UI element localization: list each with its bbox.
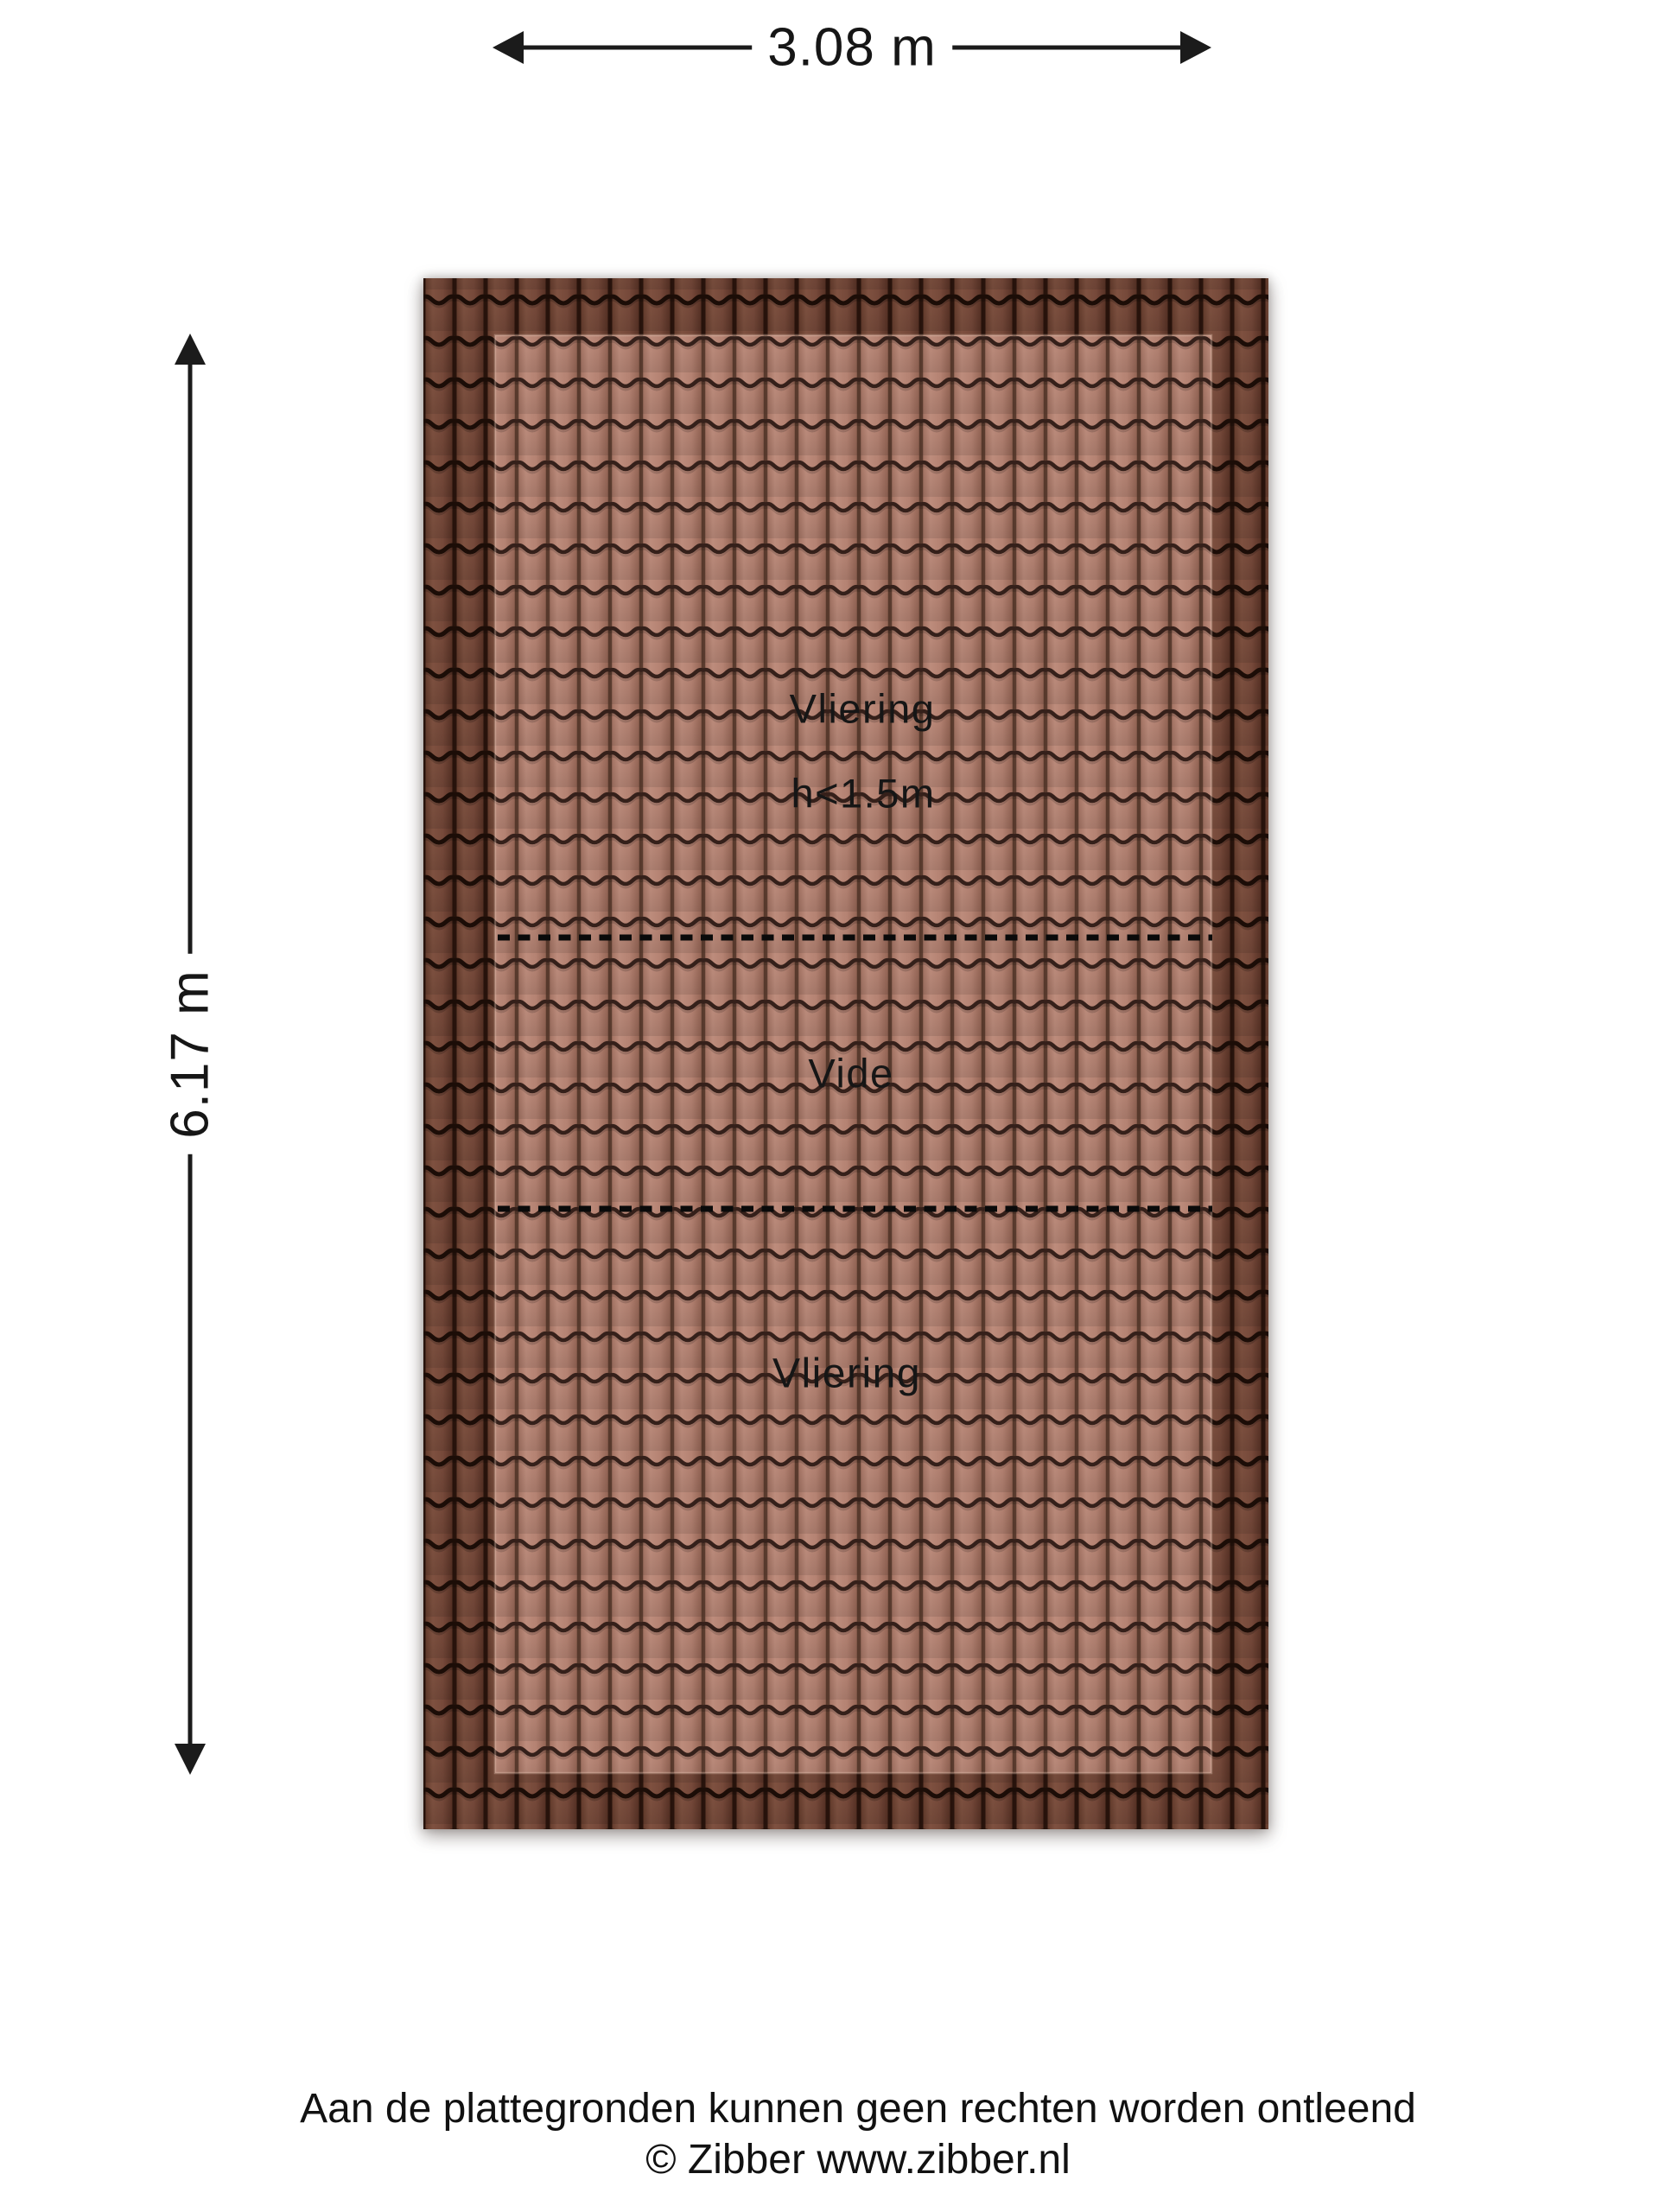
footer: Aan de plattegronden kunnen geen rechten… bbox=[300, 2084, 1416, 2185]
area-label-vide: Vide bbox=[808, 1050, 893, 1097]
footer-disclaimer: Aan de plattegronden kunnen geen rechten… bbox=[300, 2084, 1416, 2135]
area-sublabel-height-restriction: h<1.5m bbox=[791, 770, 935, 817]
footer-copyright: © Zibber www.zibber.nl bbox=[300, 2135, 1416, 2186]
width-dimension-label: 3.08 m bbox=[752, 17, 952, 79]
arrow-right-icon bbox=[1180, 31, 1211, 64]
arrow-down-icon bbox=[175, 1744, 206, 1775]
area-label-vliering-top: Vliering bbox=[790, 685, 936, 733]
arrow-left-icon bbox=[493, 31, 524, 64]
floorplan-page: 3.08 m 6.17 m Vliering h<1.5m Vide Vlier… bbox=[0, 0, 1659, 2212]
arrow-up-icon bbox=[175, 334, 206, 365]
height-dimension-label: 6.17 m bbox=[160, 954, 221, 1154]
floorplan-canvas bbox=[0, 0, 1659, 2212]
area-label-vliering-bottom: Vliering bbox=[772, 1351, 921, 1398]
